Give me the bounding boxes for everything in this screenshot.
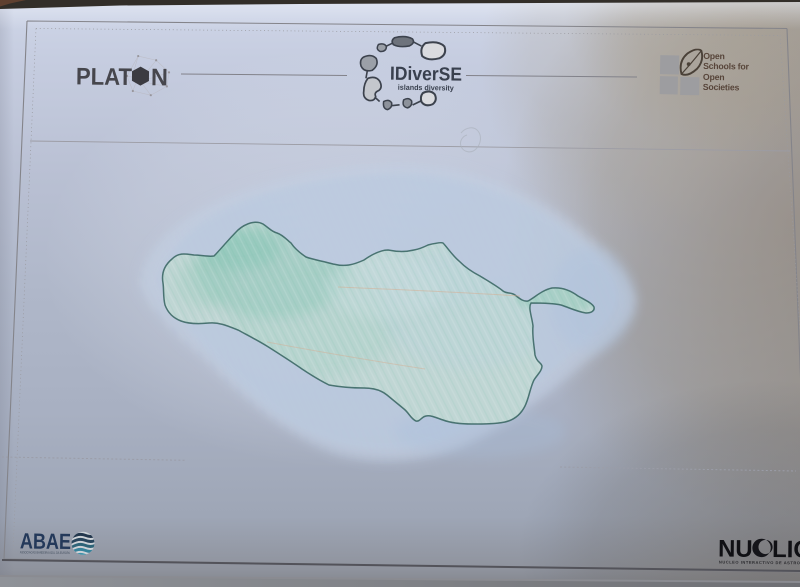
svg-text:NUCLEO INTERACTIVO DE ASTRONOM: NUCLEO INTERACTIVO DE ASTRONOMIA [719,559,800,565]
svg-text:ASSOCIACAO BANDEIRA AZUL DA EU: ASSOCIACAO BANDEIRA AZUL DA EUROPA [20,550,71,555]
svg-text:N: N [151,64,168,91]
svg-text:PLAT: PLAT [76,63,133,91]
svg-text:islands diversity: islands diversity [398,83,455,93]
